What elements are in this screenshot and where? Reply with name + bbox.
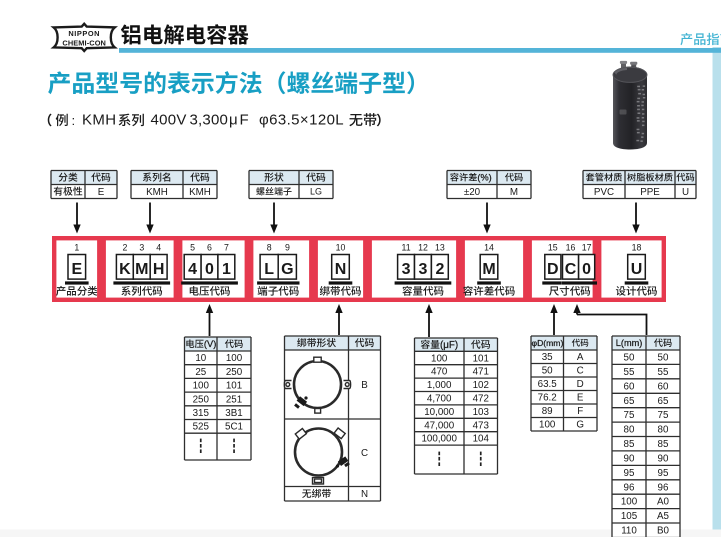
svg-text:75: 75	[624, 410, 635, 421]
svg-text:5: 5	[190, 243, 195, 253]
svg-text:3B1: 3B1	[225, 408, 242, 419]
svg-text:4: 4	[156, 243, 161, 253]
svg-text:85: 85	[624, 439, 635, 450]
svg-text:N: N	[361, 489, 368, 500]
svg-text:6: 6	[207, 243, 212, 253]
svg-text:A0: A0	[657, 497, 670, 508]
svg-text:89: 89	[542, 406, 553, 417]
svg-text:75: 75	[658, 410, 669, 421]
svg-text:9: 9	[285, 243, 290, 253]
svg-text:63.5: 63.5	[538, 379, 558, 390]
svg-text:95: 95	[624, 468, 635, 479]
svg-text:E: E	[71, 261, 82, 278]
svg-text:90: 90	[658, 454, 669, 465]
svg-text:104: 104	[473, 434, 490, 445]
svg-text:D: D	[547, 261, 559, 278]
svg-text:35: 35	[542, 352, 553, 363]
svg-text:76.2: 76.2	[538, 393, 557, 404]
svg-text:14: 14	[484, 243, 494, 253]
svg-text:50: 50	[542, 366, 553, 377]
svg-text:10: 10	[195, 353, 206, 364]
svg-text:C: C	[361, 448, 368, 459]
svg-text:KMH: KMH	[189, 187, 211, 198]
svg-text:60: 60	[658, 381, 669, 392]
svg-text:55: 55	[624, 367, 635, 378]
svg-text:L(mm): L(mm)	[616, 338, 643, 348]
svg-text:96: 96	[624, 482, 635, 493]
svg-text:101: 101	[473, 353, 489, 364]
svg-text:10: 10	[336, 243, 346, 253]
svg-text:E: E	[98, 187, 105, 198]
svg-text:470: 470	[431, 367, 448, 378]
svg-text:315: 315	[193, 408, 210, 419]
svg-text:U: U	[631, 261, 643, 278]
svg-text:5C1: 5C1	[225, 422, 243, 433]
svg-text:100: 100	[539, 420, 556, 431]
svg-text:0: 0	[582, 261, 591, 278]
svg-text:L: L	[264, 261, 274, 278]
svg-text:N: N	[335, 261, 347, 278]
svg-text:100: 100	[621, 497, 638, 508]
svg-text:3: 3	[419, 261, 428, 278]
svg-text:4,700: 4,700	[427, 394, 452, 405]
svg-text:110: 110	[621, 526, 637, 537]
svg-text:F: F	[577, 406, 583, 417]
svg-text:(μF): (μF)	[440, 340, 458, 351]
svg-text:1,000: 1,000	[427, 380, 452, 391]
svg-text:B0: B0	[657, 526, 670, 537]
svg-text:17: 17	[582, 243, 592, 253]
svg-text:250: 250	[226, 367, 243, 378]
svg-text:M: M	[510, 187, 518, 198]
svg-text:101: 101	[226, 381, 242, 392]
svg-text:2: 2	[435, 261, 444, 278]
svg-text:C: C	[577, 366, 584, 377]
svg-text:8: 8	[267, 243, 272, 253]
svg-text:16: 16	[566, 243, 576, 253]
svg-text:471: 471	[473, 367, 489, 378]
svg-text:LG: LG	[310, 187, 322, 197]
svg-text:18: 18	[632, 243, 642, 253]
svg-text:KMH: KMH	[146, 187, 168, 198]
svg-text:15: 15	[548, 243, 558, 253]
svg-text:CHEMI-CON: CHEMI-CON	[62, 39, 106, 48]
svg-text:65: 65	[624, 396, 635, 407]
svg-text:PVC: PVC	[594, 187, 614, 198]
svg-text:103: 103	[473, 407, 490, 418]
svg-text:PPE: PPE	[640, 187, 660, 198]
svg-text:55: 55	[658, 367, 669, 378]
svg-text:65: 65	[658, 396, 669, 407]
svg-text:96: 96	[658, 482, 669, 493]
svg-text:400V: 400V	[151, 112, 187, 129]
svg-text:105: 105	[621, 511, 638, 522]
svg-text:80: 80	[624, 425, 635, 436]
svg-text:(V): (V)	[204, 339, 216, 349]
svg-text:μF: μF	[229, 112, 250, 129]
svg-text:10,000: 10,000	[424, 407, 455, 418]
svg-text:13: 13	[435, 243, 445, 253]
svg-text:KMH: KMH	[82, 112, 117, 129]
svg-text:D: D	[577, 379, 584, 390]
svg-text:3: 3	[402, 261, 411, 278]
svg-text:A: A	[577, 352, 584, 363]
svg-text:1: 1	[74, 243, 79, 253]
svg-text:525: 525	[193, 422, 210, 433]
svg-text:100,000: 100,000	[421, 434, 457, 445]
svg-text:φD(mm): φD(mm)	[532, 338, 564, 348]
svg-text:φ63.5×120L: φ63.5×120L	[259, 112, 344, 129]
svg-text:3,300: 3,300	[190, 112, 229, 129]
svg-text:50: 50	[624, 353, 635, 364]
svg-text:(%): (%)	[477, 173, 491, 183]
svg-text:7: 7	[224, 243, 229, 253]
svg-text:E: E	[577, 393, 584, 404]
svg-text:U: U	[682, 187, 689, 198]
svg-text:K: K	[119, 261, 131, 278]
svg-text:A5: A5	[657, 511, 670, 522]
svg-text:±20: ±20	[464, 187, 481, 198]
svg-text:0: 0	[205, 261, 214, 278]
svg-text:11: 11	[402, 243, 411, 253]
svg-text:H: H	[153, 261, 165, 278]
svg-text:12: 12	[418, 243, 428, 253]
svg-text:4: 4	[188, 261, 197, 278]
svg-text:3: 3	[139, 243, 144, 253]
svg-text:90: 90	[624, 454, 635, 465]
svg-text:B: B	[361, 380, 368, 391]
svg-text:85: 85	[658, 439, 669, 450]
svg-text:G: G	[281, 261, 293, 278]
svg-text:60: 60	[624, 381, 635, 392]
svg-text:25: 25	[195, 367, 206, 378]
svg-text:NIPPON: NIPPON	[68, 29, 100, 38]
svg-text:473: 473	[473, 420, 490, 431]
svg-text:100: 100	[226, 353, 243, 364]
svg-text:G: G	[576, 420, 584, 431]
svg-text:2: 2	[122, 243, 127, 253]
svg-text:472: 472	[473, 394, 489, 405]
svg-text:250: 250	[193, 394, 210, 405]
svg-text:100: 100	[193, 381, 210, 392]
svg-text:102: 102	[473, 380, 489, 391]
svg-text:C: C	[565, 261, 577, 278]
svg-text:95: 95	[658, 468, 669, 479]
svg-text:M: M	[482, 261, 495, 278]
svg-text:M: M	[135, 261, 148, 278]
svg-text:1: 1	[222, 261, 231, 278]
svg-text:100: 100	[431, 353, 448, 364]
svg-text:47,000: 47,000	[424, 420, 455, 431]
svg-text:50: 50	[658, 353, 669, 364]
svg-text:251: 251	[226, 394, 242, 405]
svg-text:80: 80	[658, 425, 669, 436]
svg-text::: :	[72, 113, 76, 128]
